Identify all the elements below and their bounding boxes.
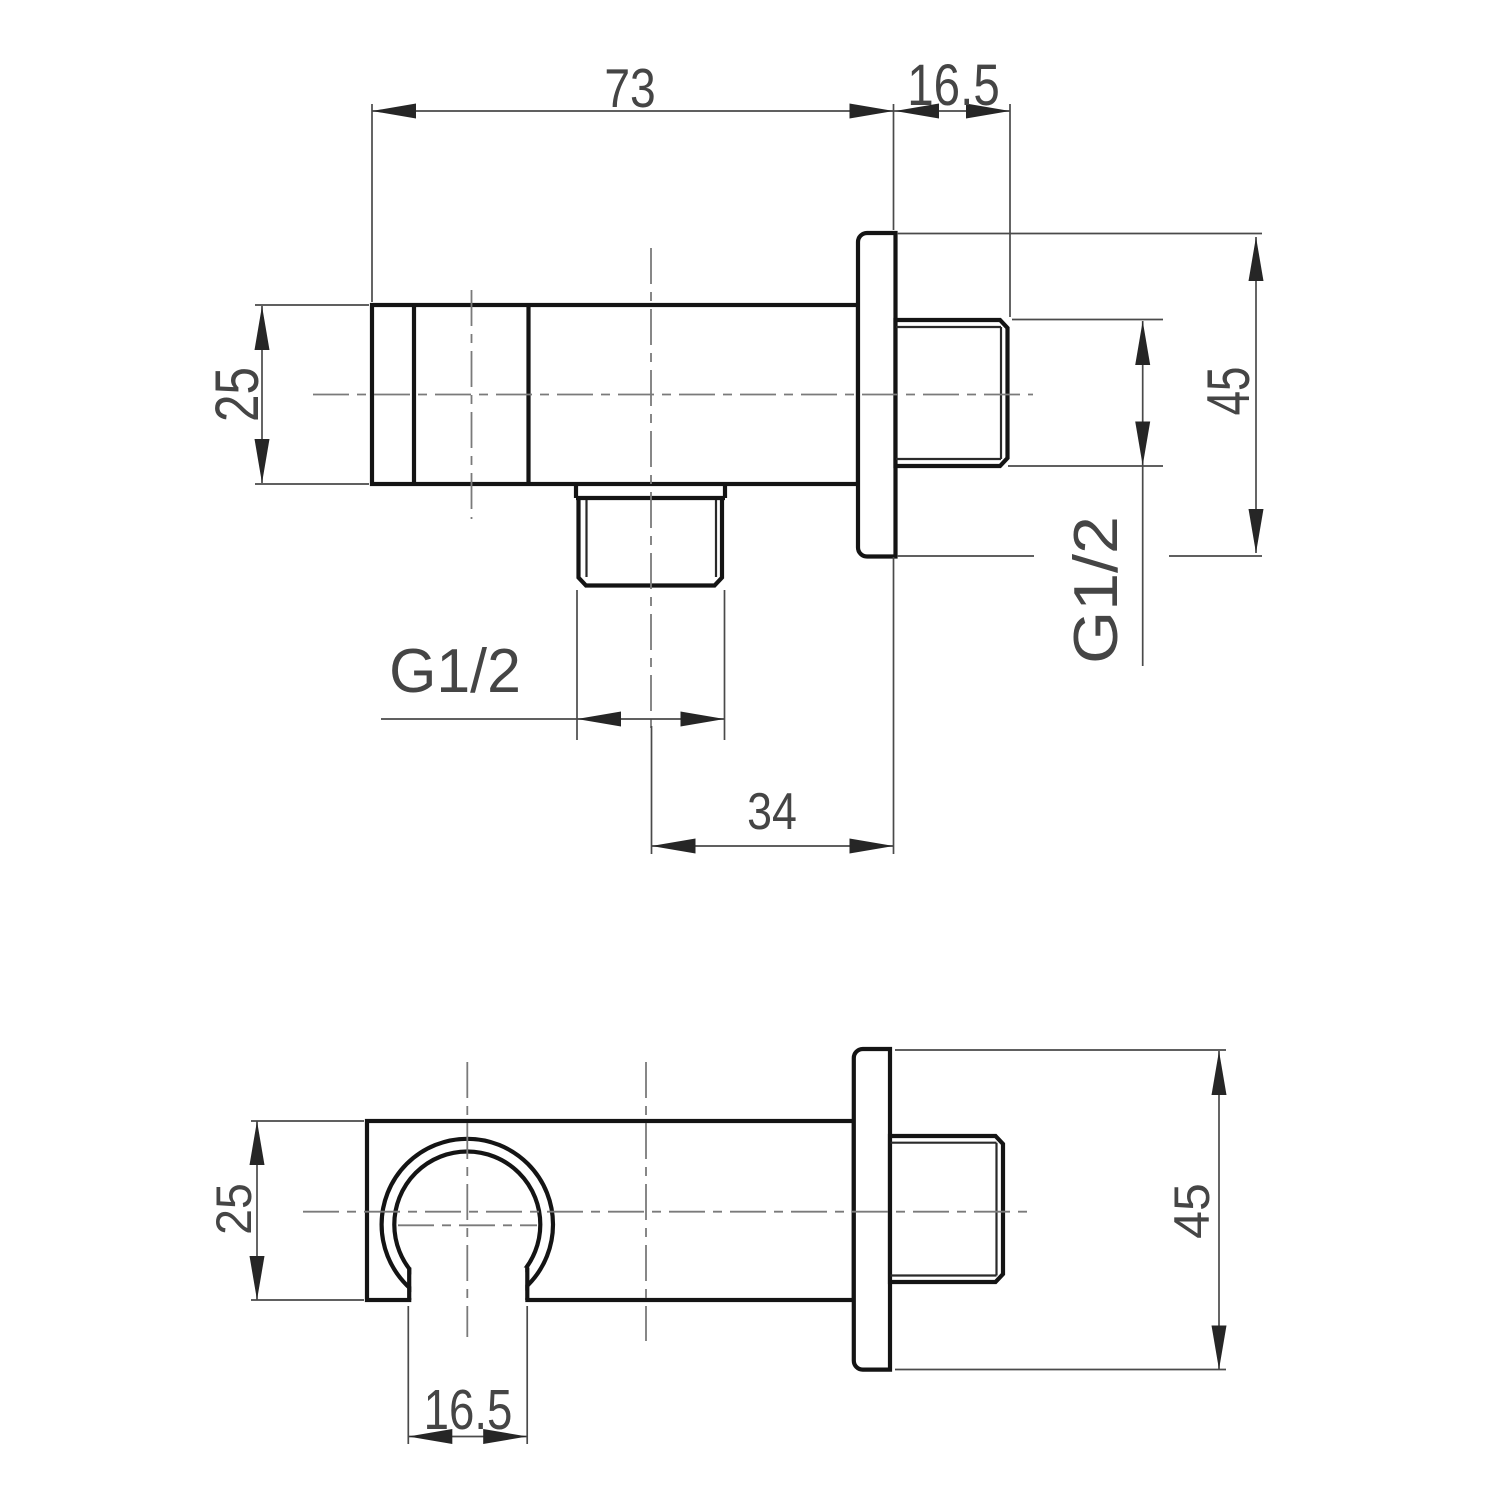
svg-text:G1/2: G1/2 [389, 636, 521, 706]
svg-text:73: 73 [604, 57, 655, 119]
svg-text:16.5: 16.5 [907, 54, 1000, 119]
svg-text:16.5: 16.5 [424, 1377, 513, 1441]
svg-text:45: 45 [1164, 1183, 1220, 1239]
svg-text:34: 34 [747, 783, 797, 841]
svg-text:25: 25 [203, 367, 271, 422]
svg-text:G1/2: G1/2 [1061, 516, 1130, 664]
svg-text:25: 25 [206, 1183, 262, 1235]
svg-text:45: 45 [1195, 367, 1262, 416]
